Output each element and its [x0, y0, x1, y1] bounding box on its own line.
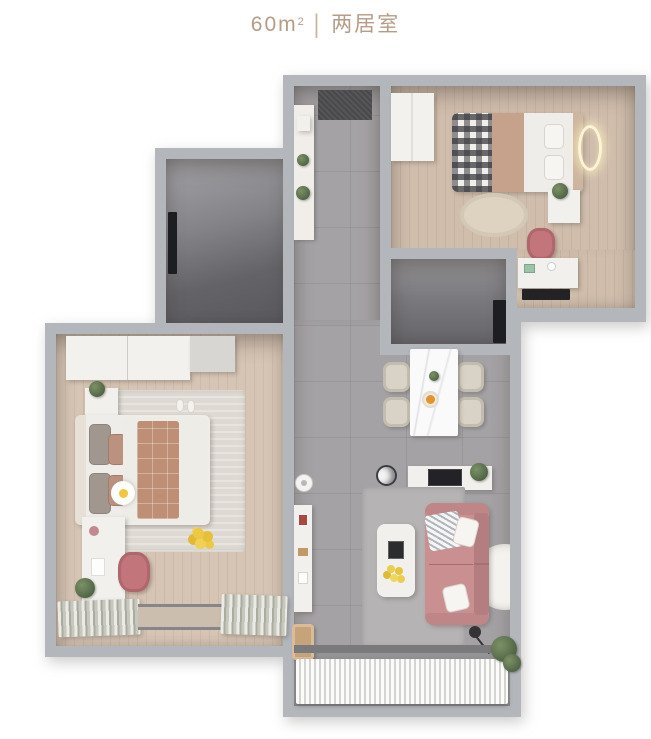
table-flowers — [387, 565, 395, 573]
shelf-plant — [296, 186, 310, 200]
dining-table — [410, 349, 458, 436]
window-sill — [138, 604, 222, 630]
fruit-plate — [422, 391, 439, 408]
daisy-pillow — [111, 481, 135, 505]
wardrobe-master — [66, 336, 190, 380]
bed-pillow — [544, 155, 564, 180]
dining-chair — [457, 397, 484, 427]
window-curtain — [57, 599, 140, 638]
shelf-plant — [297, 154, 309, 166]
coffee-table — [377, 524, 415, 597]
area-unit: m2 — [278, 13, 304, 36]
sideboard-plant — [470, 463, 488, 481]
furniture-layer — [45, 58, 651, 717]
headboard — [75, 415, 86, 525]
nightstand-plant — [89, 381, 105, 397]
bathroom-window — [168, 212, 177, 274]
window-curtain — [220, 594, 287, 636]
table-book — [388, 541, 404, 559]
sofa-pillow — [441, 583, 470, 614]
desk-books — [524, 264, 535, 273]
keyboard-tray — [522, 289, 570, 300]
bed-throw — [492, 113, 524, 192]
desk-lamp — [89, 526, 99, 536]
console-photo-frame — [297, 513, 309, 527]
balcony-blinds — [296, 659, 508, 704]
dresser-panel — [190, 336, 235, 372]
page-title: 60m2|两居室 — [0, 8, 651, 38]
dining-chair — [457, 362, 484, 392]
nightstand-plant — [552, 183, 568, 199]
desk-chair-master — [118, 552, 150, 592]
bed-master — [75, 415, 210, 525]
title-divider: | — [314, 10, 321, 40]
sofa-seam — [429, 564, 473, 565]
desk-paper — [91, 558, 105, 576]
flower-mat — [193, 528, 204, 539]
humidifier — [295, 474, 313, 492]
entry-door-mat — [318, 90, 372, 120]
slipper — [187, 400, 195, 413]
wall-clock — [376, 465, 397, 486]
wooden-stool — [292, 624, 314, 660]
round-rug-bedroom — [460, 193, 528, 237]
floor-plant — [75, 578, 95, 598]
sideboard-tray — [428, 469, 462, 486]
layout-type-label: 两居室 — [331, 13, 400, 36]
dining-chair — [383, 397, 410, 427]
bed-pillow — [544, 124, 564, 149]
ring-wall-light — [578, 125, 602, 171]
desk-chair — [527, 228, 555, 260]
floor-plan-page: 60m2|两居室 — [0, 0, 651, 739]
balcony-plant — [503, 654, 521, 672]
table-plant — [429, 371, 439, 381]
plaid-blanket — [137, 421, 179, 519]
wardrobe — [391, 93, 434, 161]
shelf-decor-box — [297, 116, 310, 131]
plaid-blanket — [452, 113, 492, 192]
console-decor — [298, 572, 308, 584]
bed-secondary — [452, 113, 583, 192]
balcony-ledge — [294, 645, 510, 653]
bathroom-door-dark — [493, 300, 506, 343]
area-value: 60 — [251, 13, 278, 36]
sofa — [425, 503, 489, 625]
slipper — [176, 399, 184, 412]
desk-mug — [547, 262, 556, 271]
floor-plan — [45, 58, 651, 717]
console-decor — [298, 548, 308, 556]
slippers — [176, 399, 198, 415]
dining-chair — [383, 362, 410, 392]
